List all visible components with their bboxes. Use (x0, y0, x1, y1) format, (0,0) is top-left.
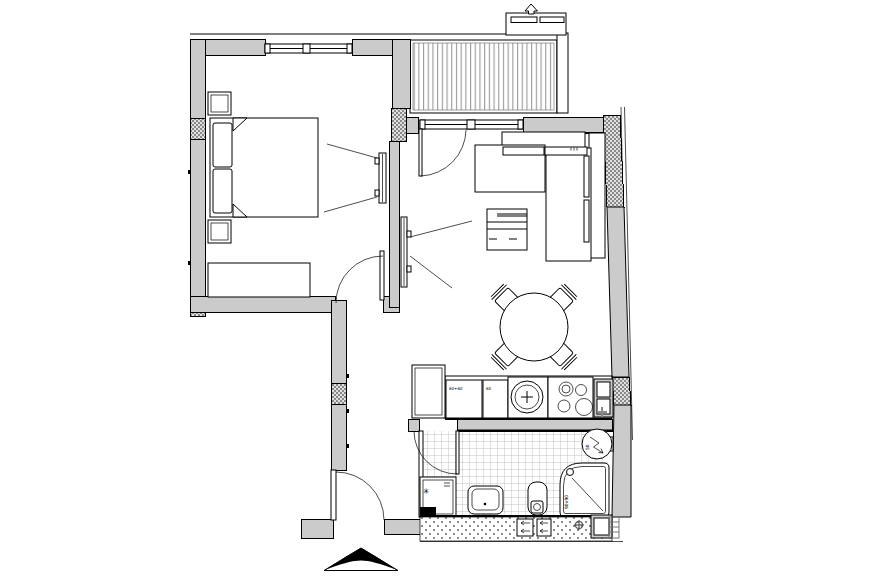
window-mullion (303, 44, 310, 53)
tv-mount (375, 158, 379, 164)
toilet (528, 482, 547, 515)
slanted-wall (607, 207, 629, 377)
ac-unit-box (506, 13, 566, 35)
wall-mark (346, 374, 349, 378)
door-swing-arc (336, 256, 383, 303)
tv-view-line (410, 221, 472, 237)
cooktop-body (548, 377, 593, 418)
balcony-door (419, 129, 466, 176)
shower: 90x90 (560, 463, 609, 517)
tv-mount (375, 190, 379, 196)
door-leaf (456, 431, 459, 474)
vent-box (517, 519, 533, 536)
bedroom-door (336, 251, 384, 303)
bathroom: ✳ 90x90 50 (408, 419, 613, 517)
column (391, 108, 406, 141)
partition-wall (389, 141, 399, 307)
cabinet-label: 60+60 (449, 386, 463, 391)
dresser (208, 263, 310, 297)
wall (352, 39, 393, 55)
living-tv (401, 217, 472, 288)
wall-mark (346, 409, 349, 413)
tv-view-line (410, 256, 452, 288)
wall (523, 117, 603, 133)
bedroom-tv (324, 144, 386, 212)
ac-unit (506, 4, 566, 35)
column (331, 383, 346, 404)
door-swing-arc (421, 130, 466, 176)
ac-unit-grille (511, 17, 537, 23)
column (612, 377, 631, 405)
tv-mount (407, 231, 411, 237)
tv-mount (407, 266, 411, 272)
boiler-size-label: 50 (585, 444, 590, 450)
balcony-decking (413, 43, 554, 110)
wall (384, 519, 423, 534)
pillow (213, 123, 232, 167)
kitchen: 60+60 60 (412, 365, 613, 419)
door-leaf (331, 470, 336, 520)
column (603, 115, 624, 207)
living-room (401, 120, 605, 371)
shaft-inner (594, 518, 609, 535)
wall-mark (188, 261, 191, 265)
wall-mark (346, 444, 349, 448)
washing-machine: ✳ (420, 477, 456, 517)
wall (301, 519, 333, 538)
wall (392, 39, 410, 108)
sofa-cushion (584, 156, 589, 197)
service-strip (420, 515, 623, 542)
wall (457, 419, 612, 431)
window-mullion (265, 44, 270, 53)
pillow (213, 169, 232, 213)
duct-vent (537, 519, 551, 536)
sink-drain (484, 503, 487, 506)
kitchen-sink (508, 377, 548, 418)
cooktop (548, 377, 593, 418)
bathroom-sink (468, 486, 503, 516)
window-mullion (420, 120, 425, 129)
entrance-door (331, 470, 384, 520)
door-leaf (380, 251, 384, 300)
nightstand-top (208, 92, 231, 115)
window-mullion (467, 120, 475, 129)
tv-view-line (324, 197, 377, 212)
wall (190, 39, 205, 300)
bedroom (208, 92, 386, 303)
washer-asterisk-icon: ✳ (423, 487, 430, 496)
vent-box (537, 519, 551, 536)
shelf-bar (503, 147, 544, 155)
cabinet-label: 60 (486, 386, 492, 391)
dining-table (500, 293, 568, 361)
living-window (420, 120, 523, 129)
balcony (410, 4, 568, 113)
walkway-stipple (420, 517, 612, 541)
fridge (412, 365, 445, 418)
toilet-base (531, 501, 543, 513)
window-mullion (347, 44, 352, 53)
wall (612, 405, 631, 517)
nightstand (208, 220, 231, 243)
nightstand-bottom (208, 220, 231, 243)
duct-vent (517, 519, 533, 536)
ac-unit-grille (540, 17, 564, 23)
wall (190, 296, 335, 312)
door-leaf (419, 129, 422, 176)
balcony-side-wall (557, 33, 568, 113)
drawer-unit (487, 209, 527, 250)
shower-size-label: 90x90 (564, 495, 569, 509)
shower-drain (567, 469, 574, 476)
boiler-body (582, 429, 612, 459)
shelf-bar (545, 147, 587, 155)
boiler: 50 (582, 429, 613, 459)
fridge-body (412, 365, 445, 418)
door-swing-arc (336, 472, 384, 520)
dining-set (490, 283, 578, 371)
window-mullion (518, 120, 523, 129)
wall (406, 117, 418, 133)
column (190, 118, 205, 139)
bedroom-window (265, 44, 352, 53)
wall (408, 419, 419, 431)
tv-view-line (327, 144, 377, 158)
wall-mark (188, 170, 191, 174)
nightstand (208, 92, 231, 115)
utility-inner (597, 382, 610, 397)
floor-plan: 60+60 60 (0, 0, 880, 580)
sofa-cushion (584, 200, 589, 242)
